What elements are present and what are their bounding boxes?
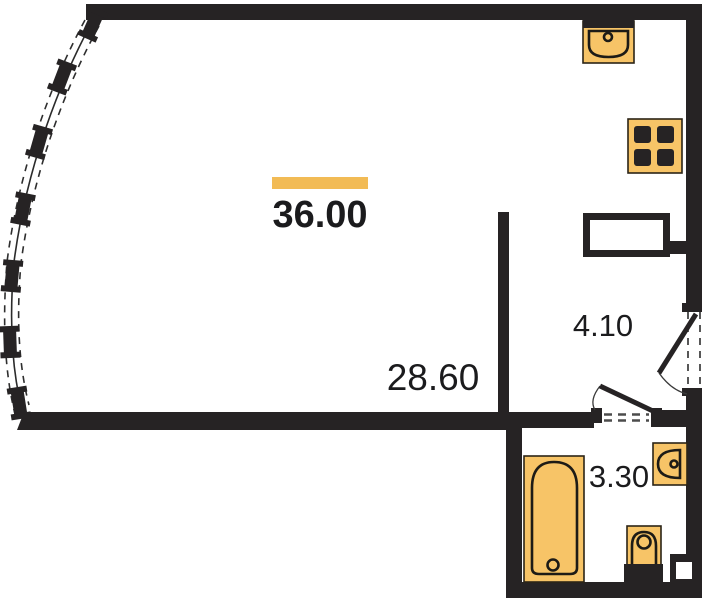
wall-top: [86, 4, 702, 20]
wall-right-upper: [686, 4, 702, 305]
hallway-area-label: 4.10: [573, 308, 633, 343]
window-mullion-icon: [10, 191, 36, 226]
fixtures: [524, 20, 687, 584]
toilet-icon: [624, 526, 663, 584]
closet: [587, 217, 667, 254]
window-mullions: [0, 5, 109, 420]
stove-icon: [628, 119, 682, 173]
wall-main-bottom: [17, 412, 506, 430]
washbasin-icon: [653, 443, 687, 485]
bathroom-area-label: 3.30: [589, 459, 649, 494]
bath-door-post-left: [591, 408, 602, 423]
bathtub-icon: [524, 456, 584, 582]
bathroom-door-leaf: [600, 386, 655, 412]
entry-door-leaf: [659, 314, 696, 373]
window-mullion-icon: [7, 386, 32, 421]
floor-plan-canvas: 36.00 28.60 4.10 3.30: [0, 0, 706, 600]
entry-jamb-top: [682, 303, 702, 312]
window-mullion-icon: [25, 124, 53, 160]
door-swing-icon: [593, 386, 600, 410]
entry-door: [659, 312, 700, 394]
kitchen-sink-icon: [583, 20, 634, 63]
walls: [17, 4, 702, 598]
wall-bathroom-left: [506, 412, 522, 598]
window-wall: [0, 5, 109, 420]
window-mullion-icon: [0, 326, 21, 359]
total-area-label: 36.00: [272, 194, 367, 236]
corner-shaft-void: [676, 562, 692, 579]
window-mullion-icon: [47, 58, 77, 95]
living-area-label: 28.60: [387, 357, 480, 398]
bathroom-door: [593, 386, 655, 421]
wall-interior-vertical: [498, 212, 509, 430]
total-area-underline: [272, 177, 368, 189]
wall-bathroom-top-left: [506, 412, 594, 428]
floor-plan: 36.00 28.60 4.10 3.30: [0, 0, 706, 600]
